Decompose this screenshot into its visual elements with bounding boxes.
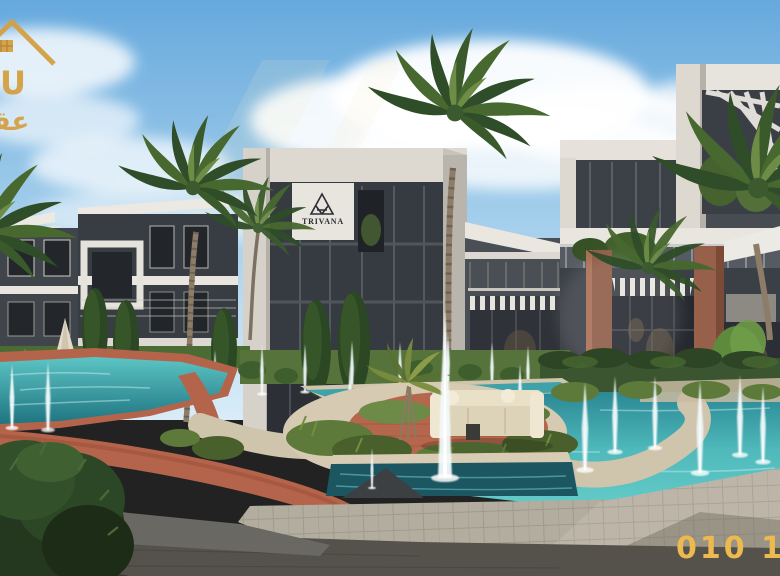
logo-arabic-text: عقار: [0, 107, 29, 137]
render-image: TRIVANA: [0, 0, 780, 576]
logo-letters: SU: [0, 64, 27, 102]
phone-number-overlay: 010 113: [676, 531, 780, 566]
trivana-sign-text: TRIVANA: [302, 217, 344, 226]
trivana-sign-panel: TRIVANA: [292, 183, 354, 240]
